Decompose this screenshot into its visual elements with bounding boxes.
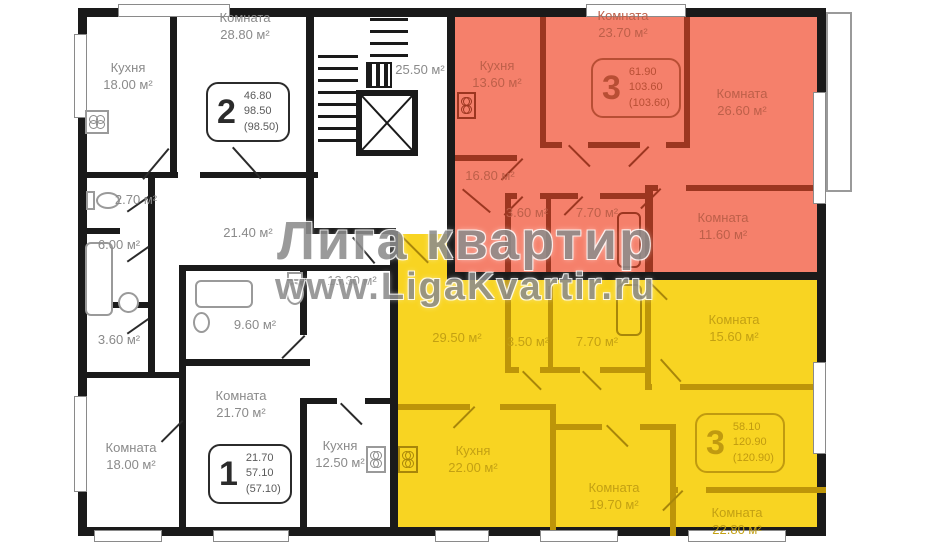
- room-label-wc-3-50: 3.50 м²: [507, 334, 549, 351]
- wall: [447, 8, 455, 234]
- apartment-badge-2room: 2 46.8098.50(98.50): [206, 82, 290, 142]
- badge-room-count: 1: [219, 457, 238, 491]
- wall: [306, 8, 314, 234]
- room-label-room-15-60: Комната15.60 м²: [709, 312, 760, 346]
- wall: [455, 155, 517, 161]
- badge-areas: 58.10120.90(120.90): [733, 420, 774, 466]
- badge-areas: 21.7057.10(57.10): [246, 451, 281, 497]
- watermark-url: www.LigaKvartir.ru: [0, 266, 931, 309]
- elevator-icon: [356, 90, 418, 156]
- stove-icon: [398, 446, 418, 473]
- apartment-badge-3room-salmon: 3 61.90103.60(103.60): [591, 58, 681, 118]
- room-label-bath-9-60: 9.60 м²: [234, 317, 276, 334]
- badge-room-count: 3: [706, 426, 725, 460]
- wall: [706, 487, 826, 493]
- window: [435, 530, 489, 542]
- room-label-stairwell-25-50: 25.50 м²: [395, 62, 444, 79]
- room-label-hall-29-50: 29.50 м²: [432, 330, 481, 347]
- balcony: [826, 12, 852, 192]
- badge-areas: 46.8098.50(98.50): [244, 89, 279, 135]
- window: [540, 530, 618, 542]
- wall: [365, 398, 392, 404]
- window: [213, 530, 289, 542]
- wall: [600, 193, 645, 199]
- wall: [540, 142, 562, 148]
- badge-areas: 61.90103.60(103.60): [629, 65, 670, 111]
- wall: [78, 372, 185, 378]
- wall: [556, 424, 602, 430]
- wall: [600, 367, 651, 373]
- window: [94, 530, 162, 542]
- room-label-kitchen-22-00: Кухня22.00 м²: [448, 443, 497, 477]
- stove-icon: [457, 92, 476, 119]
- staircase: [318, 55, 358, 147]
- wall: [588, 142, 640, 148]
- room-label-room-21-70: Комната21.70 м²: [216, 388, 267, 422]
- room-label-wc-2-70: 2.70 м²: [115, 192, 157, 209]
- room-label-room-18-00: Комната18.00 м²: [106, 440, 157, 474]
- wall: [540, 17, 546, 145]
- wall: [645, 384, 652, 390]
- room-label-room-22-80: Комната22.80 м²: [712, 505, 763, 539]
- staircase-upper-flight: [370, 18, 408, 58]
- room-label-room-19-70: Комната19.70 м²: [589, 480, 640, 514]
- door: [340, 403, 363, 426]
- wall: [500, 404, 556, 410]
- wall: [684, 17, 690, 145]
- room-label-room-28-80: Комната28.80 м²: [220, 10, 271, 44]
- sink-icon: [193, 312, 210, 333]
- window: [813, 92, 826, 204]
- wall: [78, 172, 178, 178]
- window: [813, 362, 826, 454]
- room-label-kitchen-13-60: Кухня13.60 м²: [472, 58, 521, 92]
- stove-icon: [366, 446, 386, 473]
- room-label-bath-7-70: 7.70 м²: [576, 334, 618, 351]
- window: [118, 4, 230, 17]
- room-label-room-26-60: Комната26.60 м²: [717, 86, 768, 120]
- apartment-badge-1room: 1 21.7057.10(57.10): [208, 444, 292, 504]
- ventilation-shaft: [366, 62, 392, 88]
- room-label-kitchen-12-50: Кухня12.50 м²: [315, 438, 364, 472]
- stove-icon: [85, 110, 109, 134]
- room-label-room-23-70: Комната23.70 м²: [598, 8, 649, 42]
- toilet-tank-icon: [86, 191, 95, 210]
- watermark-title: Лига квартир: [0, 210, 931, 272]
- wall: [505, 367, 519, 373]
- apartment-badge-3room-yellow: 3 58.10120.90(120.90): [695, 413, 785, 473]
- window: [74, 396, 87, 492]
- wall: [680, 384, 826, 390]
- window: [74, 34, 87, 118]
- wall: [645, 300, 651, 390]
- wall: [307, 398, 337, 404]
- floor-plan: Кухня18.00 м² Комната28.80 м² 2.70 м² 6.…: [0, 0, 931, 544]
- wall: [300, 398, 307, 536]
- wall: [670, 424, 676, 536]
- wall: [670, 487, 678, 493]
- room-label-storage-3-60: 3.60 м²: [98, 332, 140, 349]
- badge-room-count: 3: [602, 71, 621, 105]
- wall: [179, 359, 310, 366]
- room-label-hall-16-80: 16.80 м²: [465, 168, 514, 185]
- wall: [686, 185, 826, 191]
- door: [281, 335, 305, 359]
- wall: [170, 8, 177, 178]
- wall: [540, 367, 580, 373]
- badge-room-count: 2: [217, 95, 236, 129]
- room-label-kitchen-18: Кухня18.00 м²: [103, 60, 152, 94]
- wall: [398, 404, 470, 410]
- wall: [640, 424, 674, 430]
